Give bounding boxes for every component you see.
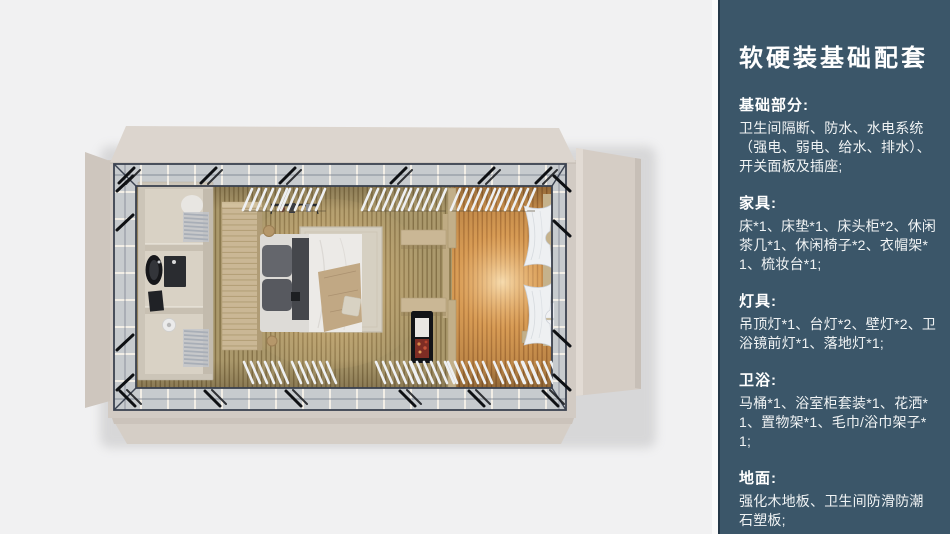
stove [411,311,433,363]
pillow [262,245,292,277]
basket [267,336,277,346]
section-bathroom-body: 马桶*1、浴室柜套装*1、花洒*1、置物架*1、毛巾/浴巾架子*1; [739,394,937,451]
pillow [262,279,292,311]
panel-title: 软硬装基础配套 [739,44,937,73]
section-furniture-body: 床*1、床垫*1、床头柜*2、休闲茶几*1、休闲椅子*2、衣帽架*1、梳妆台*1… [739,217,937,274]
basket [264,226,275,237]
section-bathroom: 卫浴: 马桶*1、浴室柜套装*1、花洒*1、置物架*1、毛巾/浴巾架子*1; [739,370,937,451]
wardrobe [222,202,262,350]
section-lighting-heading: 灯具: [739,291,937,312]
section-basics-body: 卫生间隔断、防水、水电系统（强电、弱电、给水、排水）、开关面板及插座; [739,119,937,176]
section-bathroom-heading: 卫浴: [739,370,937,391]
bed [260,226,362,347]
floorplan-render [0,0,716,534]
left-flap [85,152,110,408]
section-lighting-body: 吊顶灯*1、台灯*2、壁灯*2、卫浴镜前灯*1、落地灯*1; [739,315,937,353]
right-flap [576,148,641,396]
slide: 软硬装基础配套 基础部分: 卫生间隔断、防水、水电系统（强电、弱电、给水、排水）… [0,0,950,534]
section-lighting: 灯具: 吊顶灯*1、台灯*2、壁灯*2、卫浴镜前灯*1、落地灯*1; [739,291,937,353]
bathroom [138,182,213,380]
info-panel: 软硬装基础配套 基础部分: 卫生间隔断、防水、水电系统（强电、弱电、给水、排水）… [712,0,950,534]
section-flooring: 地面: 强化木地板、卫生间防滑防潮石塑板; [739,468,937,530]
section-furniture: 家具: 床*1、床垫*1、床头柜*2、休闲茶几*1、休闲椅子*2、衣帽架*1、梳… [739,193,937,274]
section-furniture-heading: 家具: [739,193,937,214]
section-flooring-body: 强化木地板、卫生间防滑防潮石塑板; [739,492,937,530]
section-basics-heading: 基础部分: [739,95,937,116]
section-flooring-heading: 地面: [739,468,937,489]
section-basics: 基础部分: 卫生间隔断、防水、水电系统（强电、弱电、给水、排水）、开关面板及插座… [739,95,937,176]
